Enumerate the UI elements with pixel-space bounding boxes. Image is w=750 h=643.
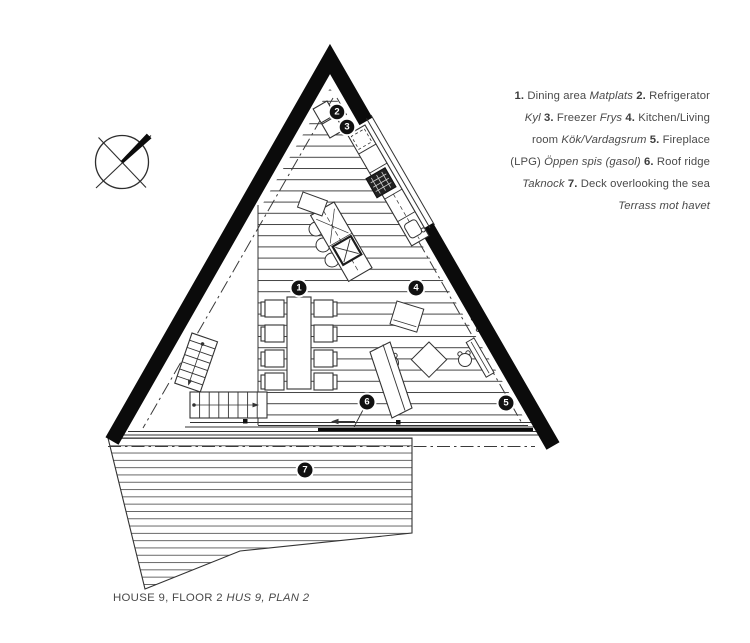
caption: HOUSE 9, FLOOR 2 HUS 9, PLAN 2 bbox=[113, 592, 309, 604]
badge-5: 5 bbox=[497, 394, 516, 413]
svg-text:2: 2 bbox=[334, 107, 339, 118]
badge-6: 6 bbox=[358, 393, 377, 412]
legend-line: 1. Dining area Matplats 2. Refrigerator bbox=[410, 85, 710, 107]
badge-3: 3 bbox=[338, 118, 356, 136]
wall-post bbox=[396, 420, 401, 425]
svg-text:4: 4 bbox=[413, 283, 419, 294]
svg-text:3: 3 bbox=[344, 122, 349, 133]
staircase-lower-flight bbox=[190, 392, 267, 418]
swivel-chair bbox=[458, 351, 472, 367]
floor-plan-page: 1 2 3 4 5 6 7 1. Dining area Matplats 2.… bbox=[0, 0, 750, 643]
badge-7: 7 bbox=[296, 461, 315, 480]
legend-line: Taknock 7. Deck overlooking the sea bbox=[410, 173, 710, 195]
svg-text:7: 7 bbox=[302, 465, 307, 476]
staircase-upper-flight bbox=[175, 333, 218, 392]
badge-1: 1 bbox=[290, 279, 309, 298]
wall-post bbox=[243, 419, 248, 424]
caption-english: HOUSE 9, FLOOR 2 bbox=[113, 592, 226, 604]
legend-line: Kyl 3. Freezer Frys 4. Kitchen/Living bbox=[410, 107, 710, 129]
svg-text:1: 1 bbox=[296, 283, 302, 294]
legend: 1. Dining area Matplats 2. Refrigerator … bbox=[410, 85, 710, 217]
badge-2: 2 bbox=[328, 103, 346, 121]
svg-text:5: 5 bbox=[503, 398, 509, 409]
dining-table bbox=[287, 297, 311, 389]
legend-line: Terrass mot havet bbox=[410, 195, 710, 217]
caption-swedish: HUS 9, PLAN 2 bbox=[226, 592, 309, 604]
legend-line: room Kök/Vardagsrum 5. Fireplace bbox=[410, 129, 710, 151]
svg-text:6: 6 bbox=[364, 397, 369, 408]
badge-4: 4 bbox=[407, 279, 426, 298]
legend-line: (LPG) Öppen spis (gasol) 6. Roof ridge bbox=[410, 151, 710, 173]
north-arrow-compass-icon bbox=[96, 134, 152, 189]
deck bbox=[108, 438, 412, 589]
